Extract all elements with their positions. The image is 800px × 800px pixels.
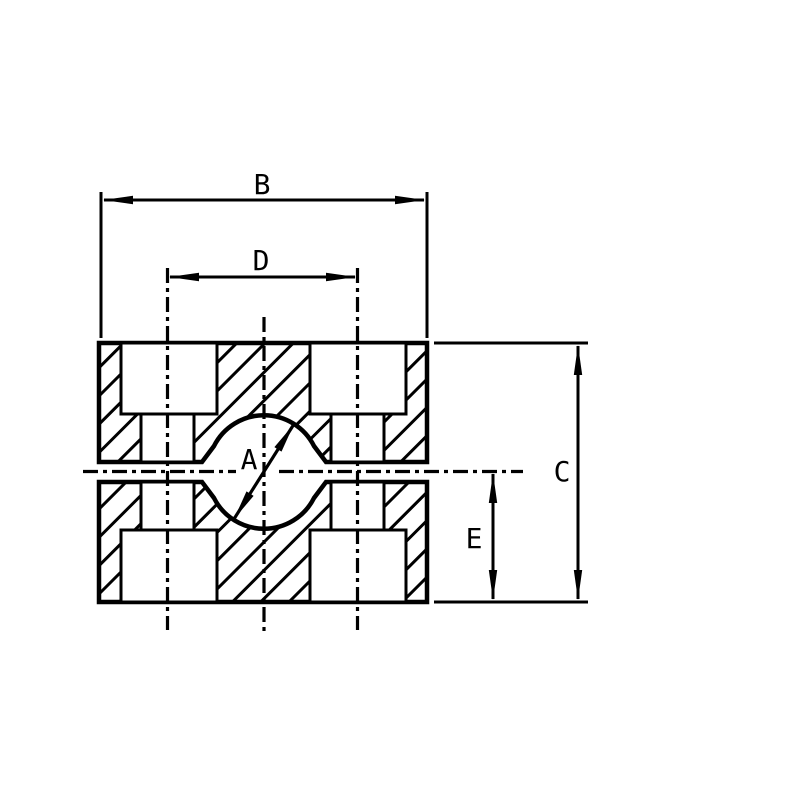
clamp-section-drawing-page: B D C E A <box>0 0 800 800</box>
clamp-cross-section-drawing: B D C E A <box>0 0 800 800</box>
dim-e-label: E <box>466 522 483 555</box>
dim-a-label: A <box>241 443 258 476</box>
dim-b-label: B <box>254 168 271 201</box>
dim-c-label: C <box>554 455 571 488</box>
dim-d-label: D <box>253 244 270 277</box>
